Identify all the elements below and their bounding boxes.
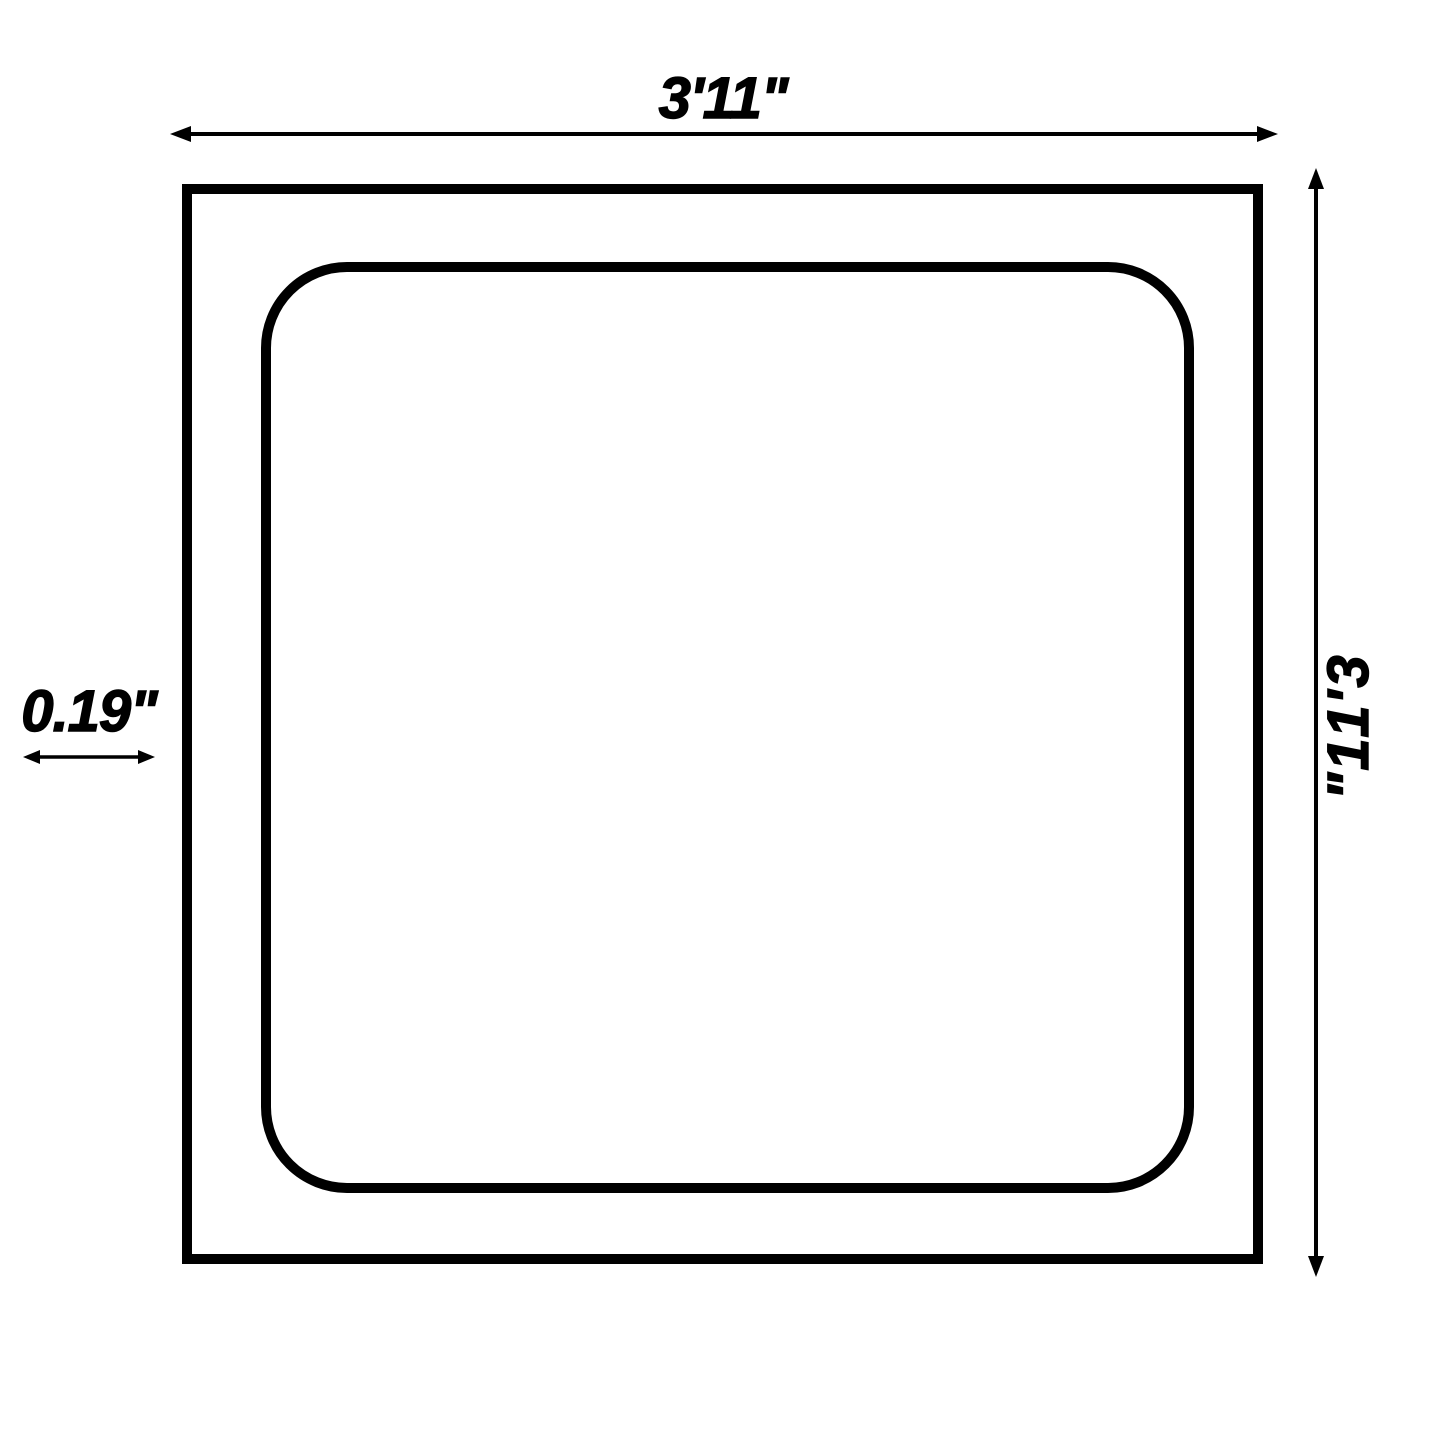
- height-label-char: 3: [1320, 656, 1378, 687]
- height-label-char: 1: [1320, 739, 1378, 770]
- arrow-left-icon: [23, 750, 40, 764]
- arrow-right-icon: [138, 750, 155, 764]
- height-label-char: 1: [1320, 706, 1378, 737]
- panel-drawing: [0, 0, 1445, 1445]
- panel-dimension-diagram: 3'11" 0.19" 3 ' 1 1 ": [0, 0, 1445, 1445]
- height-label-char: ': [1320, 692, 1378, 705]
- thickness-dimension-label: 0.19": [0, 683, 178, 741]
- arrow-right-icon: [1257, 126, 1278, 142]
- arrow-down-icon: [1308, 1256, 1324, 1277]
- width-dimension-label: 3'11": [523, 70, 923, 128]
- arrow-left-icon: [170, 126, 191, 142]
- panel-inner-molding: [266, 267, 1189, 1188]
- thickness-dimension-arrow: [23, 750, 155, 764]
- arrow-up-icon: [1308, 168, 1324, 189]
- panel-outer-edge: [187, 189, 1258, 1259]
- height-label-char: ": [1320, 774, 1378, 801]
